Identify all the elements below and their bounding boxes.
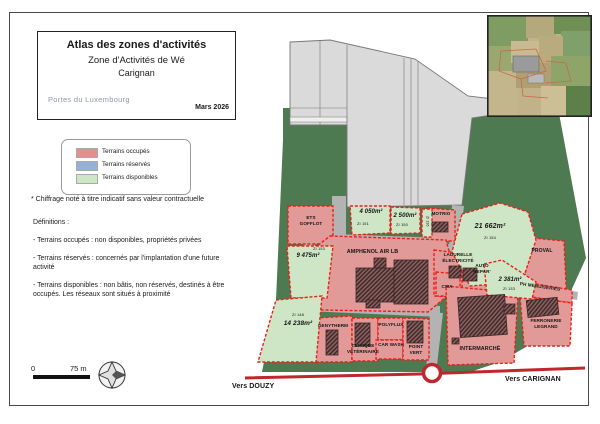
legend: Terrains occupés Terrains réservés Terra…	[61, 139, 191, 195]
aerial-inset	[487, 15, 592, 117]
legend-label-occupied: Terrains occupés	[102, 148, 150, 155]
legend-swatch-available	[76, 174, 98, 184]
map-date: Mars 2026	[195, 104, 229, 111]
parcel-zi150	[391, 207, 420, 234]
definitions-heading: Définitions :	[33, 219, 235, 228]
parcel-zi151	[350, 206, 390, 235]
scale-bar	[33, 375, 90, 379]
roundabout	[424, 365, 441, 382]
legend-label-reserved: Terrains réservés	[102, 161, 150, 168]
page-city: Carignan	[38, 68, 235, 78]
definition-reserved: - Terrains réservés : concernés par l'im…	[33, 255, 235, 273]
page-subtitle: Zone d'Activités de Wé	[38, 55, 235, 66]
parcel-zi148	[258, 296, 322, 362]
legend-swatch-reserved	[76, 161, 98, 171]
title-block: Atlas des zones d'activités Zone d'Activ…	[37, 31, 236, 120]
compass-rose-icon	[99, 362, 125, 388]
parcel-zi136	[422, 209, 432, 237]
legend-label-available: Terrains disponibles	[102, 174, 158, 181]
scale-zero: 0	[31, 364, 35, 373]
logo-text: Portes du Luxembourg	[48, 95, 130, 104]
definition-occupied: - Terrains occupés : non disponibles, pr…	[33, 237, 235, 246]
parcel-zi153	[287, 246, 333, 298]
legend-swatch-occupied	[76, 148, 98, 158]
parcel-car-wash	[376, 340, 403, 359]
parcel-polyflux	[378, 318, 403, 340]
definitions: Définitions : - Terrains occupés : non d…	[33, 219, 235, 309]
definition-available: - Terrains disponibles : non bâtis, non …	[33, 282, 235, 300]
scale-distance: 75 m	[70, 364, 87, 373]
footnote: * Chiffrage noté à titre indicatif sans …	[31, 196, 241, 203]
page-title: Atlas des zones d'activités	[38, 39, 235, 51]
